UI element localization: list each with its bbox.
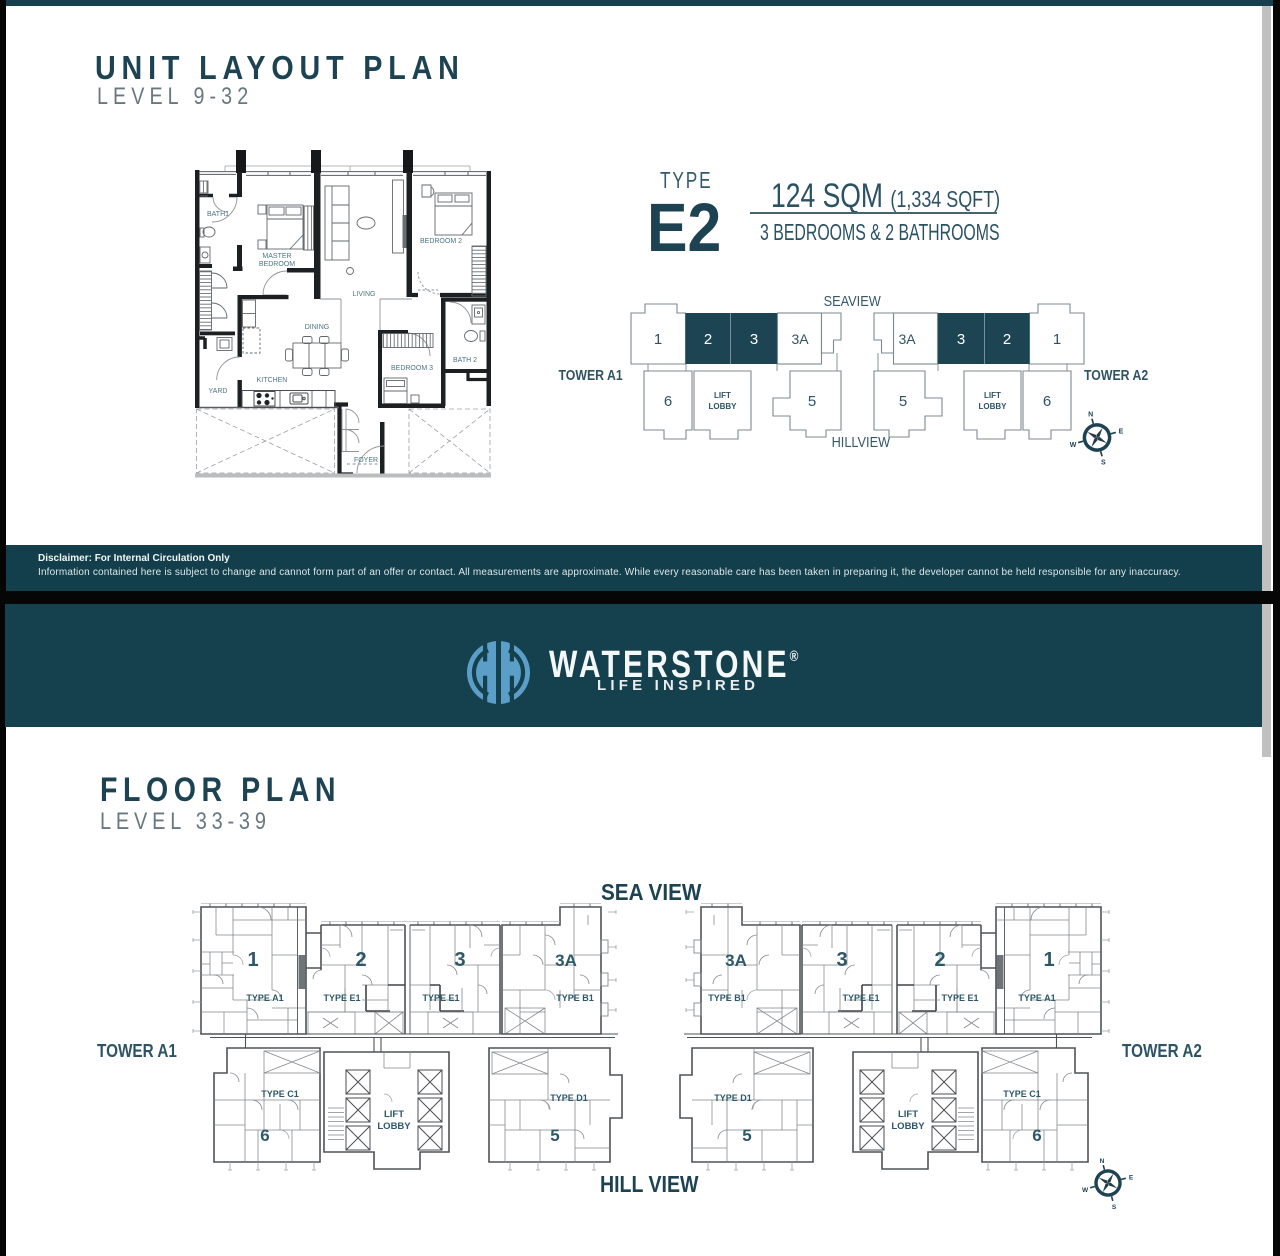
svg-text:SEAVIEW: SEAVIEW — [824, 292, 882, 309]
svg-text:3A: 3A — [725, 951, 747, 970]
svg-text:6: 6 — [260, 1126, 269, 1145]
svg-text:TOWER A2: TOWER A2 — [1084, 367, 1149, 383]
svg-text:6: 6 — [664, 393, 672, 410]
svg-text:2: 2 — [1003, 331, 1011, 348]
svg-text:1: 1 — [1053, 331, 1061, 348]
svg-text:LOBBY: LOBBY — [377, 1121, 411, 1132]
svg-text:3: 3 — [957, 331, 965, 348]
svg-text:N: N — [1100, 1158, 1105, 1165]
svg-text:1: 1 — [1043, 949, 1054, 971]
svg-text:6: 6 — [1043, 393, 1051, 410]
svg-text:LIFT: LIFT — [898, 1109, 918, 1120]
svg-text:LIVING: LIVING — [353, 291, 376, 298]
svg-text:W: W — [1070, 442, 1077, 449]
svg-text:3: 3 — [454, 949, 465, 971]
svg-text:BEDROOM 3: BEDROOM 3 — [391, 365, 433, 372]
svg-text:BEDROOM 2: BEDROOM 2 — [420, 238, 462, 245]
svg-text:BEDROOM: BEDROOM — [259, 261, 295, 268]
svg-text:TYPE E1: TYPE E1 — [323, 993, 360, 1003]
svg-text:LIFT: LIFT — [714, 391, 731, 400]
svg-text:3A: 3A — [898, 331, 916, 347]
svg-text:3A: 3A — [555, 951, 577, 970]
svg-text:TYPE D1: TYPE D1 — [714, 1093, 752, 1103]
svg-text:BATH1: BATH1 — [207, 211, 229, 218]
svg-text:DINING: DINING — [305, 324, 330, 331]
svg-text:LIFT: LIFT — [984, 391, 1001, 400]
svg-text:2: 2 — [355, 949, 366, 971]
svg-text:TYPE E1: TYPE E1 — [422, 993, 459, 1003]
svg-text:S: S — [1112, 1204, 1117, 1211]
svg-text:E: E — [1119, 429, 1124, 436]
svg-text:TYPE B1: TYPE B1 — [556, 993, 594, 1003]
svg-text:TYPE C1: TYPE C1 — [261, 1089, 299, 1099]
svg-text:S: S — [1101, 460, 1106, 467]
svg-text:5: 5 — [899, 393, 907, 410]
svg-text:W: W — [1082, 1187, 1089, 1194]
svg-text:TYPE B1: TYPE B1 — [708, 993, 746, 1003]
svg-text:5: 5 — [742, 1126, 751, 1145]
svg-text:TYPE E1: TYPE E1 — [941, 993, 978, 1003]
svg-text:LOBBY: LOBBY — [709, 402, 738, 411]
svg-text:HILLVIEW: HILLVIEW — [832, 433, 891, 450]
svg-text:6: 6 — [1032, 1126, 1041, 1145]
svg-text:MASTER: MASTER — [262, 253, 291, 260]
svg-text:1: 1 — [247, 949, 258, 971]
svg-text:TYPE C1: TYPE C1 — [1003, 1089, 1041, 1099]
svg-text:5: 5 — [550, 1126, 559, 1145]
svg-text:FOYER: FOYER — [354, 457, 378, 464]
svg-text:YARD: YARD — [209, 388, 228, 395]
svg-text:2: 2 — [934, 949, 945, 971]
svg-text:TYPE A1: TYPE A1 — [246, 993, 283, 1003]
svg-text:TYPE A1: TYPE A1 — [1018, 993, 1055, 1003]
svg-text:LOBBY: LOBBY — [891, 1121, 925, 1132]
svg-text:2: 2 — [704, 331, 712, 348]
svg-text:LIFT: LIFT — [384, 1109, 404, 1120]
svg-text:LOBBY: LOBBY — [979, 402, 1008, 411]
svg-text:1: 1 — [654, 331, 662, 348]
svg-text:3: 3 — [750, 331, 758, 348]
svg-text:TYPE E1: TYPE E1 — [842, 993, 879, 1003]
svg-text:N: N — [1088, 411, 1093, 418]
svg-text:3: 3 — [836, 949, 847, 971]
svg-text:E: E — [1129, 1174, 1134, 1181]
svg-text:3A: 3A — [791, 331, 809, 347]
svg-text:TOWER A1: TOWER A1 — [559, 367, 624, 383]
svg-text:KITCHEN: KITCHEN — [257, 377, 288, 384]
svg-text:TYPE D1: TYPE D1 — [550, 1093, 588, 1103]
svg-text:BATH 2: BATH 2 — [453, 357, 477, 364]
svg-text:5: 5 — [808, 393, 816, 410]
